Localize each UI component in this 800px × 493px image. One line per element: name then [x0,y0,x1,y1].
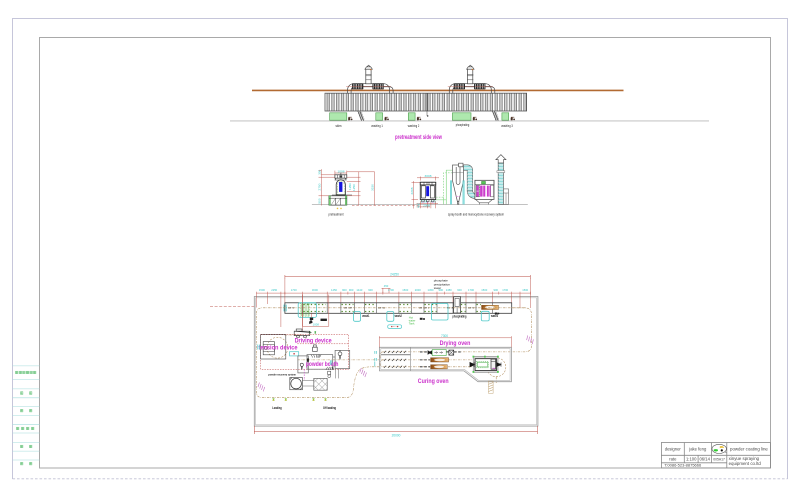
svg-text:20000: 20000 [392,434,401,438]
svg-text:900: 900 [493,288,498,292]
svg-text:1450: 1450 [446,288,452,292]
svg-text:1008: 1008 [338,169,345,173]
svg-text:2000: 2000 [415,288,421,292]
svg-text:2208: 2208 [410,187,414,194]
svg-text:rate: rate [669,457,677,462]
svg-text:phosphating: phosphating [452,315,466,319]
svg-text:skim: skim [336,124,342,128]
svg-text:900: 900 [457,288,462,292]
svg-text:1450: 1450 [331,288,337,292]
svg-text:washing 1: washing 1 [371,124,383,128]
svg-text:washing 3: washing 3 [501,124,513,128]
svg-text:powder recovery system: powder recovery system [268,372,296,376]
svg-text:1008: 1008 [313,323,320,327]
svg-text:900: 900 [342,288,347,292]
svg-text:1500: 1500 [259,288,265,292]
svg-text:Drying oven: Drying oven [440,340,471,347]
svg-text:900: 900 [349,288,354,292]
svg-text:pretreatment side view: pretreatment side view [395,134,442,141]
svg-text:tower: tower [434,286,441,290]
svg-text:1500: 1500 [402,288,408,292]
svg-text:7300: 7300 [441,334,448,338]
svg-text:500: 500 [318,198,322,203]
svg-text:3008: 3008 [425,174,432,178]
svg-text:designer: designer [665,447,682,452]
svg-text:phosphating: phosphating [456,123,470,127]
svg-text:wash1: wash1 [362,314,370,318]
svg-text:06/14: 06/14 [699,457,710,462]
svg-text:2008: 2008 [423,203,430,207]
svg-text:equipment co.ltd: equipment co.ltd [729,461,762,466]
svg-text:spray booth and monocyclone re: spray booth and monocyclone recovery sys… [448,213,504,217]
svg-text:Loading: Loading [272,406,282,410]
svg-text:300: 300 [318,169,322,174]
svg-text:1700: 1700 [291,288,297,292]
svg-text:powder booth: powder booth [306,361,339,368]
svg-text:1500: 1500 [481,288,487,292]
svg-text:3000: 3000 [312,288,318,292]
svg-text:1:100: 1:100 [686,457,697,462]
svg-text:1500: 1500 [522,288,528,292]
svg-text:2250: 2250 [271,288,277,292]
svg-text:pretreatment: pretreatment [329,212,344,216]
svg-text:Off loading: Off loading [323,406,336,410]
svg-text:450: 450 [384,284,389,288]
svg-text:24250: 24250 [390,272,399,276]
svg-text:3150: 3150 [371,184,375,191]
svg-text:1700: 1700 [502,288,508,292]
svg-text:005A17: 005A17 [713,458,725,462]
svg-text:1700: 1700 [388,288,394,292]
svg-text:wash2: wash2 [394,314,402,318]
svg-text:tension device: tension device [259,344,299,351]
svg-text:1700: 1700 [468,288,474,292]
svg-text:powder coating line: powder coating line [730,446,768,451]
svg-text:T:0086-523-8875666: T:0086-523-8875666 [664,463,702,468]
svg-text:1250: 1250 [352,184,356,191]
svg-text:washing 2: washing 2 [408,124,420,128]
svg-text:Curing oven: Curing oven [418,378,449,385]
svg-text:2750: 2750 [318,183,322,190]
svg-text:Tank: Tank [409,321,415,325]
svg-text:1443: 1443 [356,288,362,292]
svg-text:wash3: wash3 [490,314,498,318]
svg-text:jake feng: jake feng [688,447,707,452]
svg-text:900: 900 [368,288,373,292]
